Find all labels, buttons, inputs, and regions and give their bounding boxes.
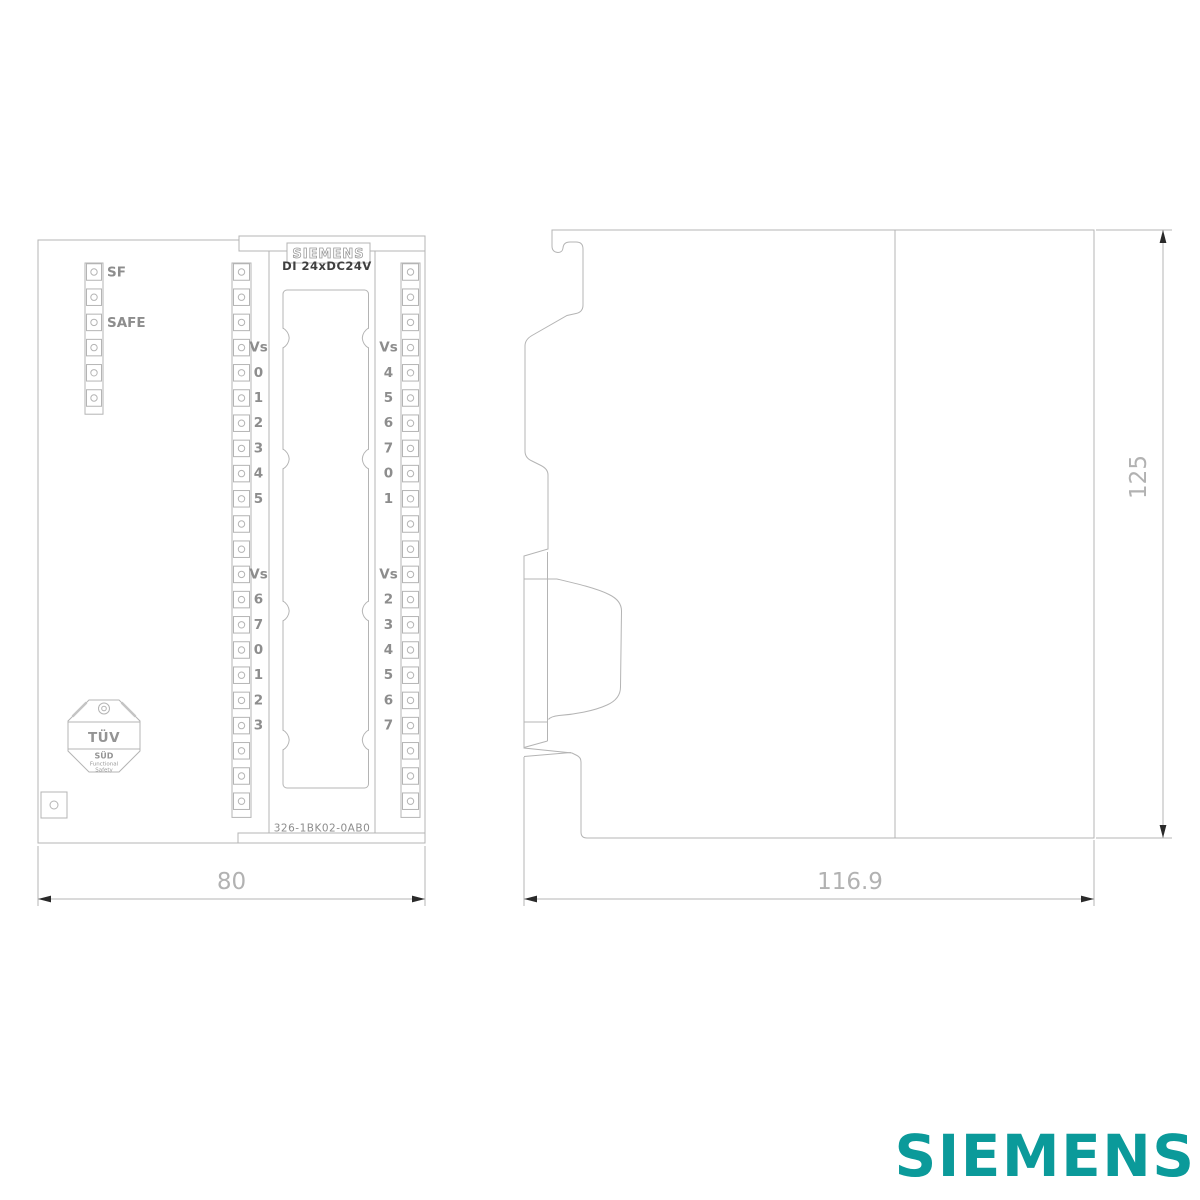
- led-strip: [85, 263, 103, 414]
- terminal-strip-right-terminal-icon: [407, 370, 413, 376]
- terminal-strip-middle-cell: [234, 717, 250, 734]
- front-bottom-inner-edge: [238, 833, 425, 843]
- terminal-strip-right-terminal-icon: [407, 773, 413, 779]
- led-strip-cell: [87, 365, 102, 382]
- terminal-strip-middle-terminal-icon: [238, 395, 244, 401]
- terminal-strip-middle-terminal-icon: [238, 571, 244, 577]
- arrow-up-icon: [1160, 230, 1167, 243]
- terminal-strip-middle-cell: [234, 289, 250, 306]
- terminal-strip-middle-terminal-icon: [238, 470, 244, 476]
- terminal-strip-middle-cell: [234, 743, 250, 760]
- tuv-seal-inner-icon: [102, 706, 107, 711]
- terminal-strip-right-terminal-icon: [407, 521, 413, 527]
- middle-strip-label: 3: [254, 718, 263, 734]
- terminal-strip-right-terminal-icon: [407, 672, 413, 678]
- led-strip-cell: [87, 264, 102, 281]
- led-strip-cell: [87, 339, 102, 356]
- right-strip-label: 4: [384, 365, 393, 381]
- terminal-strip-right-cell: [403, 264, 419, 281]
- right-strip-label: 4: [384, 642, 393, 658]
- terminal-strip-middle-cell: [234, 339, 250, 356]
- terminal-strip-right-cell: [403, 566, 419, 583]
- terminal-strip-middle-terminal-icon: [238, 319, 244, 325]
- terminal-strip-middle-terminal-icon: [238, 344, 244, 350]
- tuv-badge: TÜV SÜD Functional Safety: [68, 700, 140, 774]
- terminal-strip-right-terminal-icon: [407, 622, 413, 628]
- tuv-line4: Safety: [95, 768, 113, 774]
- terminal-strip-right-cell: [403, 717, 419, 734]
- terminal-strip-right-terminal-icon: [407, 319, 413, 325]
- terminal-strip-middle-cell: [234, 692, 250, 709]
- terminal-strip-middle-cell: [234, 642, 250, 659]
- mounting-square: [41, 792, 67, 818]
- terminal-strip-middle-cell: [234, 390, 250, 407]
- led-strip-cell: [87, 289, 102, 306]
- terminal-strip-middle-terminal-icon: [238, 773, 244, 779]
- terminal-strip-middle-terminal-icon: [238, 546, 244, 552]
- terminal-strip-middle-terminal-icon: [238, 672, 244, 678]
- tuv-seal-icon: [99, 703, 110, 714]
- terminal-strip-right-cell: [403, 591, 419, 608]
- side-clip-edge: [524, 552, 571, 757]
- middle-strip-label: 3: [254, 440, 263, 456]
- terminal-strip-right-cell: [403, 516, 419, 533]
- terminal-strip-middle-cell: [234, 793, 250, 810]
- terminal-strip-middle-terminal-icon: [238, 420, 244, 426]
- terminal-strip-middle-terminal-icon: [238, 294, 244, 300]
- terminal-strip-middle-terminal-icon: [238, 622, 244, 628]
- terminal-strip-right-cell: [403, 339, 419, 356]
- side-view: [524, 230, 1094, 838]
- terminal-strip-middle-terminal-icon: [238, 748, 244, 754]
- side-depth-value: 116.9: [817, 869, 883, 895]
- extension-lines: [524, 757, 1094, 906]
- middle-strip-label: 2: [254, 692, 263, 708]
- terminal-strip-right-cell: [403, 491, 419, 508]
- terminal-strip-right-terminal-icon: [407, 697, 413, 703]
- tuv-arc-text-left: [73, 703, 87, 717]
- terminal-strip-middle-cell: [234, 667, 250, 684]
- terminal-strip-right-terminal-icon: [407, 571, 413, 577]
- terminal-strip-right-cell: [403, 743, 419, 760]
- terminal-strip-right-terminal-icon: [407, 344, 413, 350]
- terminal-strip-middle-terminal-icon: [238, 596, 244, 602]
- terminal-strip-right-cell: [403, 365, 419, 382]
- right-strip-label: 7: [384, 718, 393, 734]
- terminal-strip-right-terminal-icon: [407, 748, 413, 754]
- terminal-strip-right-cell: [403, 314, 419, 331]
- middle-strip-label: 2: [254, 415, 263, 431]
- arrow-left-icon: [524, 896, 537, 903]
- terminal-strip-middle-cell: [234, 617, 250, 634]
- right-strip-label: 6: [384, 415, 393, 431]
- arrow-right-icon: [1081, 896, 1094, 903]
- terminal-strip-right-terminal-icon: [407, 269, 413, 275]
- terminal-strip-right-terminal-icon: [407, 470, 413, 476]
- terminal-strip-right-terminal-icon: [407, 496, 413, 502]
- side-connector-bulge: [524, 579, 622, 722]
- led-strip-terminal-icon: [91, 319, 97, 325]
- terminal-strip-right-terminal-icon: [407, 445, 413, 451]
- terminal-strip-right-cell: [403, 768, 419, 785]
- front-width-value: 80: [217, 869, 246, 895]
- terminal-strip-right-cell: [403, 541, 419, 558]
- terminal-strip-middle: [232, 263, 251, 817]
- terminal-strip-middle-cell: [234, 264, 250, 281]
- led-strip-terminal-icon: [91, 395, 97, 401]
- middle-strip-label: Vs: [249, 566, 267, 582]
- part-number: 326-1BK02-0AB0: [274, 823, 371, 835]
- terminal-strip-right-terminal-icon: [407, 395, 413, 401]
- side-height-value: 125: [1126, 455, 1152, 499]
- terminal-strip-middle-terminal-icon: [238, 697, 244, 703]
- terminal-strip-right-cell: [403, 692, 419, 709]
- middle-strip-label: 5: [254, 491, 263, 507]
- terminal-strip-right-terminal-icon: [407, 546, 413, 552]
- terminal-strip-right-cell: [403, 465, 419, 482]
- middle-strip-label: 7: [254, 617, 263, 633]
- middle-strip-label: 1: [254, 667, 263, 683]
- led-strip-terminal-icon: [91, 370, 97, 376]
- terminal-strip-middle-cell: [234, 365, 250, 382]
- right-strip-label: 3: [384, 617, 393, 633]
- terminal-strip-middle-cell: [234, 465, 250, 482]
- safe-led-label: SAFE: [107, 315, 146, 331]
- terminal-strip-right-cell: [403, 617, 419, 634]
- terminal-strip-right-terminal-icon: [407, 647, 413, 653]
- terminal-strip-middle-terminal-icon: [238, 521, 244, 527]
- right-strip-label: Vs: [379, 340, 397, 356]
- extension-lines: [1096, 230, 1172, 838]
- terminal-strip-right-cell: [403, 642, 419, 659]
- front-door-cover: [283, 290, 369, 788]
- dimension-side-depth: 116.9: [524, 757, 1094, 906]
- terminal-strip-middle-cell: [234, 314, 250, 331]
- middle-strip-label: 1: [254, 390, 263, 406]
- terminal-strip-middle-terminal-icon: [238, 798, 244, 804]
- terminal-strip-right-cell: [403, 667, 419, 684]
- terminal-strip-middle-terminal-icon: [238, 445, 244, 451]
- right-strip-label: 5: [384, 390, 393, 406]
- arrow-left-icon: [38, 896, 51, 903]
- right-strip-label: 2: [384, 592, 393, 608]
- tuv-title: TÜV: [88, 728, 120, 746]
- terminal-strip-middle-terminal-icon: [238, 269, 244, 275]
- terminal-strip-right-cell: [403, 440, 419, 457]
- led-strip-terminal-icon: [91, 344, 97, 350]
- led-strip-outline: [85, 263, 103, 414]
- led-strip-cell: [87, 314, 102, 331]
- module-type-label: DI 24xDC24V: [282, 259, 372, 273]
- right-strip-label: 1: [384, 491, 393, 507]
- led-strip-terminal-icon: [91, 269, 97, 275]
- page: SF SAFE SIEMENS DI 24xDC24V Vs012345Vs67…: [0, 0, 1200, 1200]
- terminal-strip-middle-terminal-icon: [238, 722, 244, 728]
- terminal-strip-middle-terminal-icon: [238, 647, 244, 653]
- right-strip-label: Vs: [379, 566, 397, 582]
- terminal-strip-middle-cell: [234, 516, 250, 533]
- right-strip-label: 5: [384, 667, 393, 683]
- tuv-subtitle: SÜD: [95, 751, 114, 761]
- terminal-strip-right-cell: [403, 390, 419, 407]
- terminal-strip-right-terminal-icon: [407, 722, 413, 728]
- terminal-strip-middle-cell: [234, 491, 250, 508]
- side-outline: [524, 230, 1094, 838]
- terminal-strip-right-terminal-icon: [407, 798, 413, 804]
- right-strip-label: 0: [384, 466, 393, 482]
- terminal-strip-right-cell: [403, 415, 419, 432]
- terminal-strip-middle-terminal-icon: [238, 496, 244, 502]
- arrow-down-icon: [1160, 825, 1167, 838]
- terminal-strip-middle-cell: [234, 768, 250, 785]
- terminal-strip-right: [401, 263, 420, 817]
- terminal-strip-middle-cell: [234, 566, 250, 583]
- terminal-strip-middle-cell: [234, 591, 250, 608]
- middle-strip-label: Vs: [249, 340, 267, 356]
- sf-led-label: SF: [107, 264, 126, 280]
- front-view: SF SAFE SIEMENS DI 24xDC24V Vs012345Vs67…: [38, 236, 425, 843]
- terminal-strip-middle-terminal-icon: [238, 370, 244, 376]
- mounting-hole-icon: [50, 801, 58, 809]
- middle-strip-label: 0: [254, 365, 263, 381]
- terminal-strip-middle-cell: [234, 541, 250, 558]
- dimension-side-height: 125: [1096, 230, 1172, 838]
- terminal-strip-middle-cell: [234, 440, 250, 457]
- tuv-arc-text-right: [122, 703, 136, 717]
- terminal-strip-middle-cell: [234, 415, 250, 432]
- terminal-strip-right-cell: [403, 793, 419, 810]
- dimension-front-width: 80: [38, 846, 425, 906]
- right-strip-label: 7: [384, 440, 393, 456]
- terminal-strip-right-cell: [403, 289, 419, 306]
- led-strip-cell: [87, 390, 102, 407]
- technical-drawing: SF SAFE SIEMENS DI 24xDC24V Vs012345Vs67…: [0, 0, 1200, 1200]
- led-strip-terminal-icon: [91, 294, 97, 300]
- middle-strip-label: 6: [254, 592, 263, 608]
- middle-strip-label: 4: [254, 466, 263, 482]
- terminal-strip-right-terminal-icon: [407, 294, 413, 300]
- terminal-strip-right-terminal-icon: [407, 596, 413, 602]
- siemens-logo: SIEMENS: [894, 1122, 1195, 1190]
- middle-strip-label: 0: [254, 642, 263, 658]
- arrow-right-icon: [412, 896, 425, 903]
- right-strip-label: 6: [384, 692, 393, 708]
- terminal-strip-right-terminal-icon: [407, 420, 413, 426]
- dimensions: 80 116.9 125: [38, 230, 1172, 906]
